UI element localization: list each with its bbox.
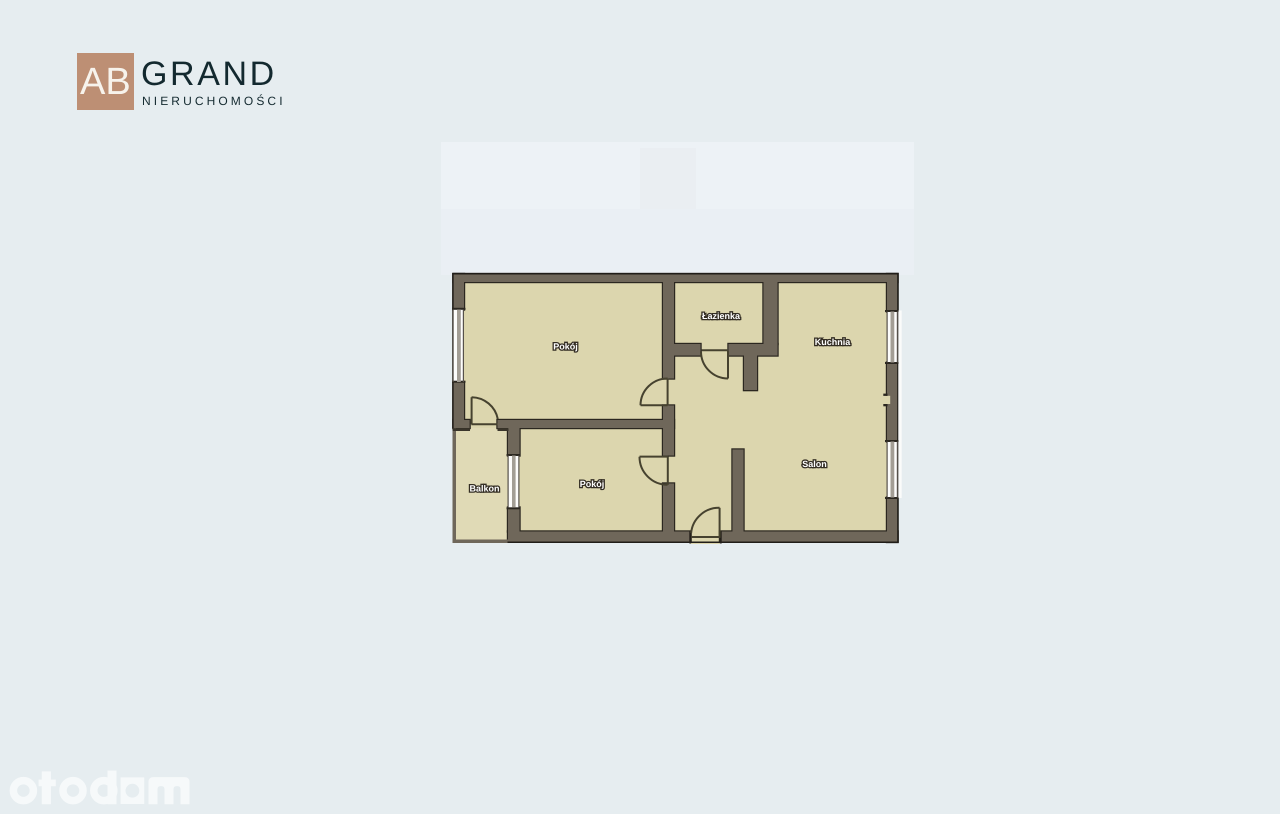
svg-text:Pokój: Pokój xyxy=(580,479,605,489)
svg-text:Łazienka: Łazienka xyxy=(702,311,741,321)
svg-text:Kuchnia: Kuchnia xyxy=(815,337,851,347)
svg-text:Balkon: Balkon xyxy=(469,484,499,494)
svg-text:Pokój: Pokój xyxy=(553,342,578,352)
svg-text:Salon: Salon xyxy=(802,459,827,469)
